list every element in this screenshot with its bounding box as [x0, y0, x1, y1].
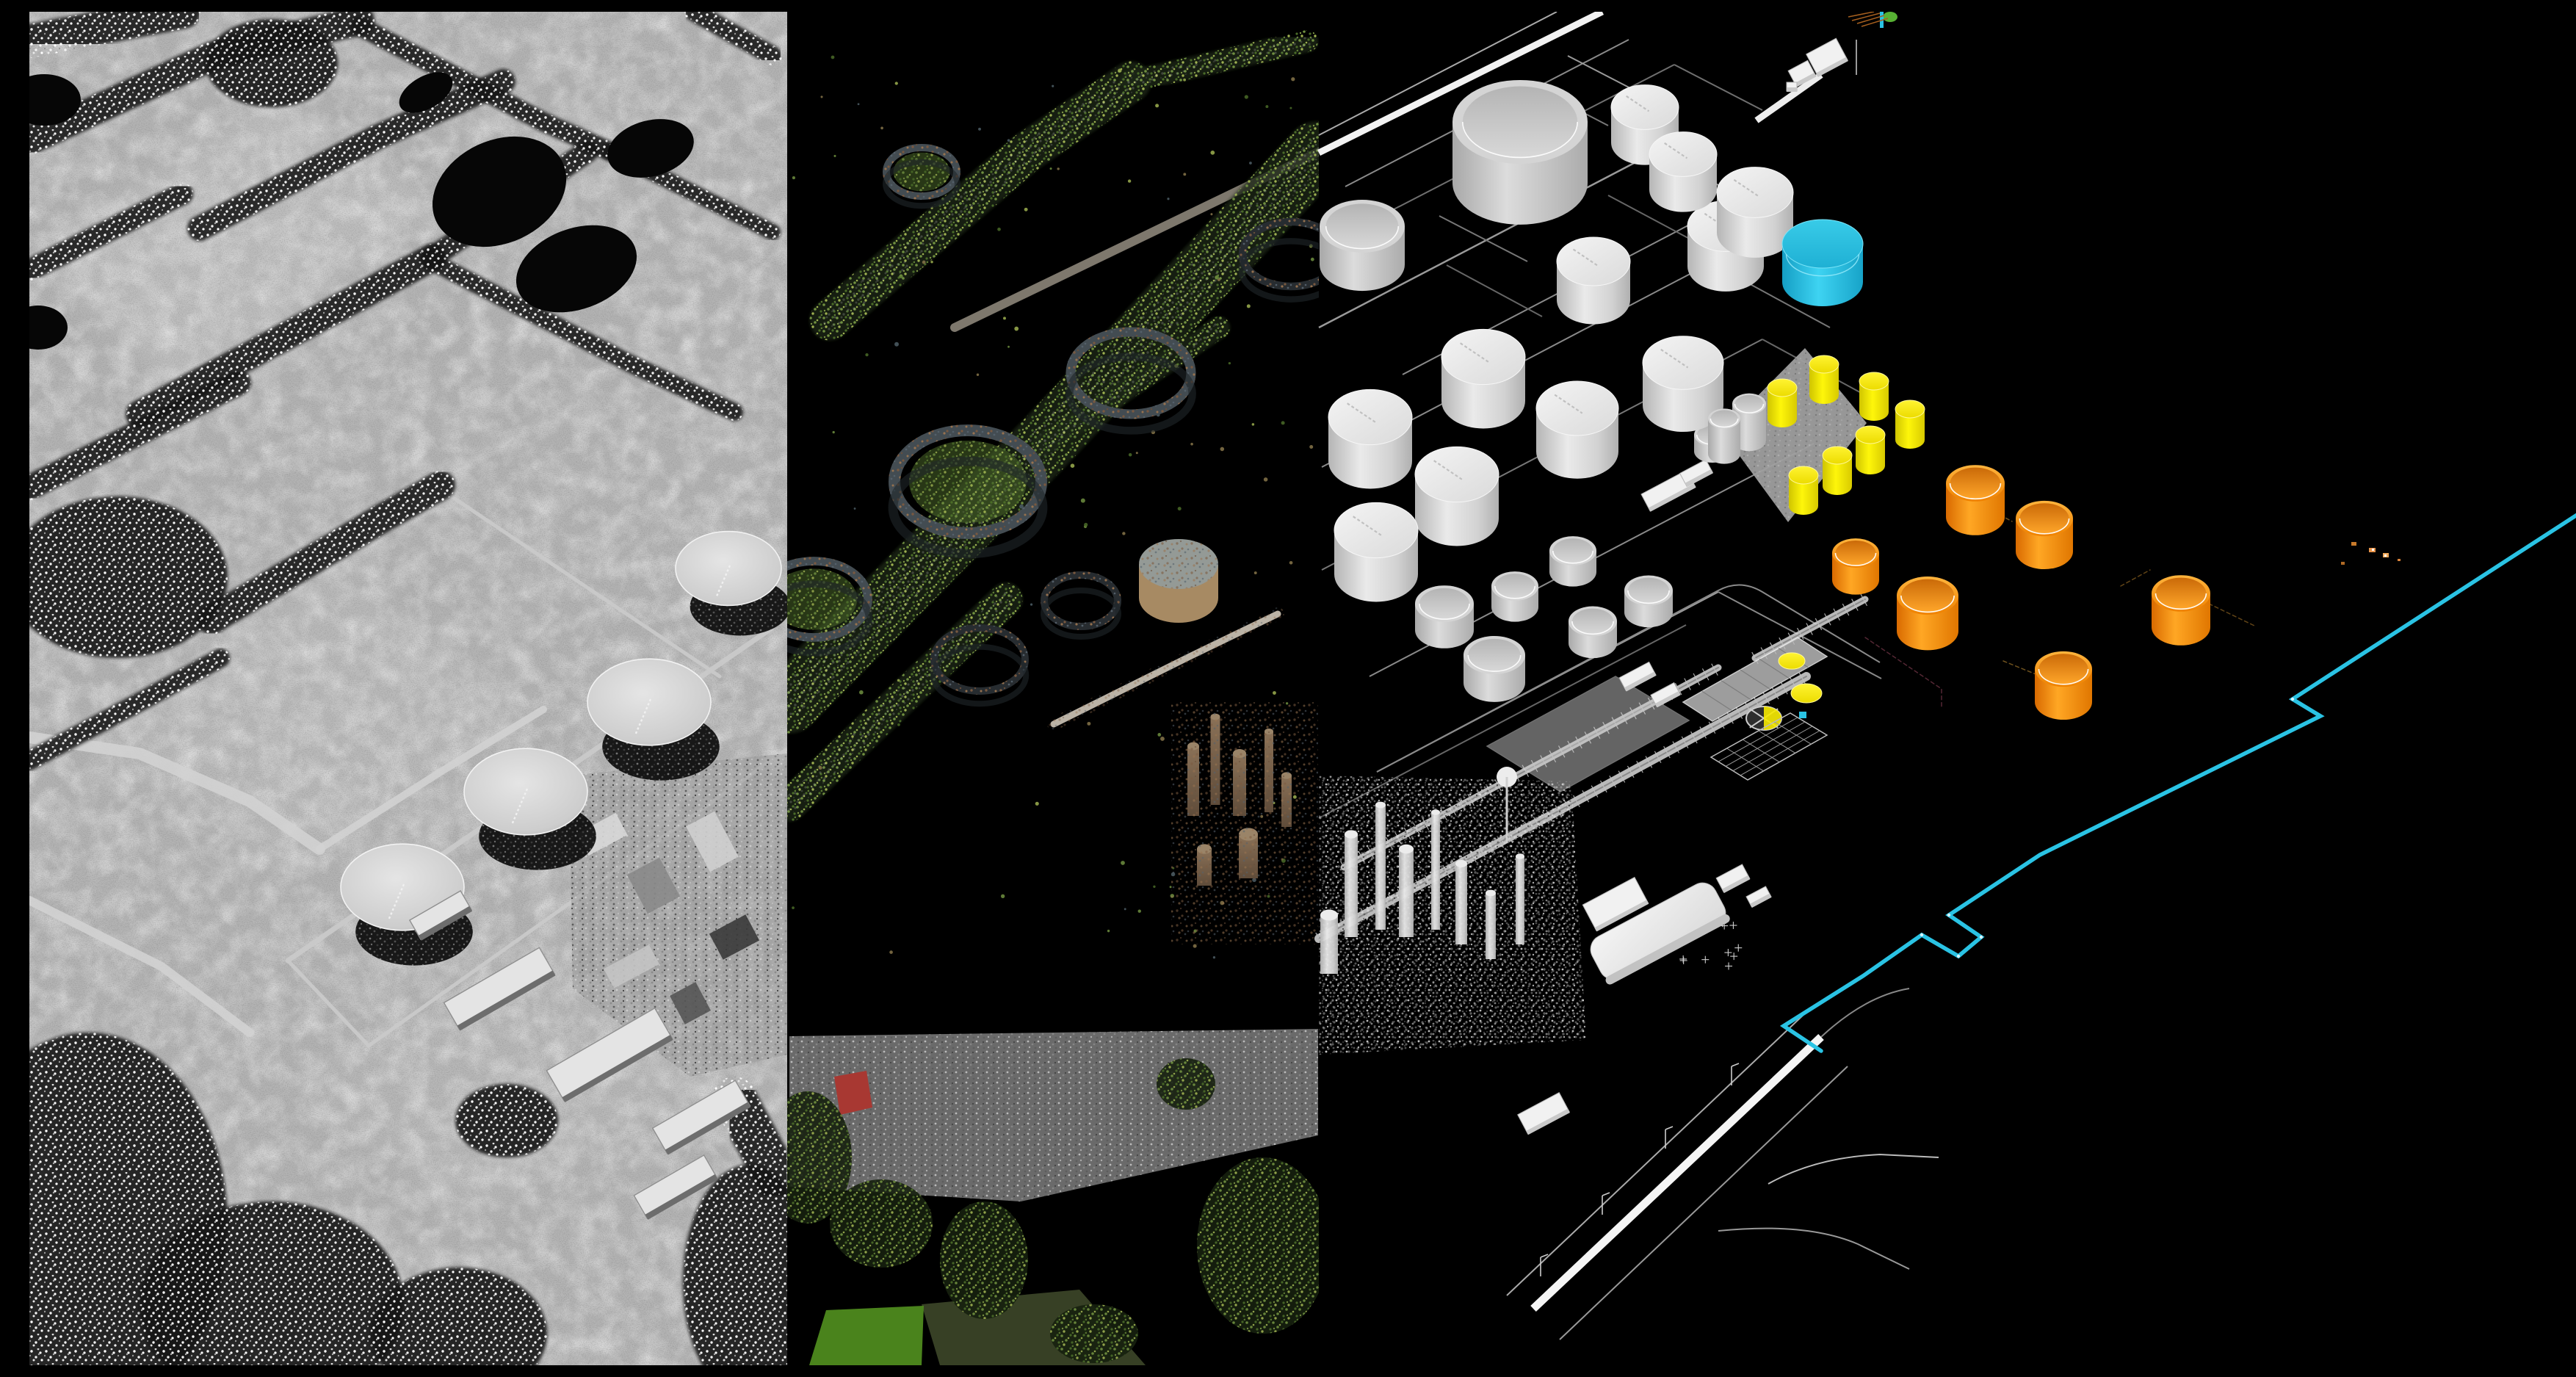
band-rgb-pointcloud [759, 12, 1341, 1365]
3d-viewport[interactable]: Aerial digital-twin visualization of a t… [29, 12, 2576, 1365]
screenshot-stage: Aerial digital-twin visualization of a t… [29, 12, 2576, 1365]
band-lidar-intensity [29, 12, 815, 1365]
band-cad-model [1316, 12, 2576, 1365]
